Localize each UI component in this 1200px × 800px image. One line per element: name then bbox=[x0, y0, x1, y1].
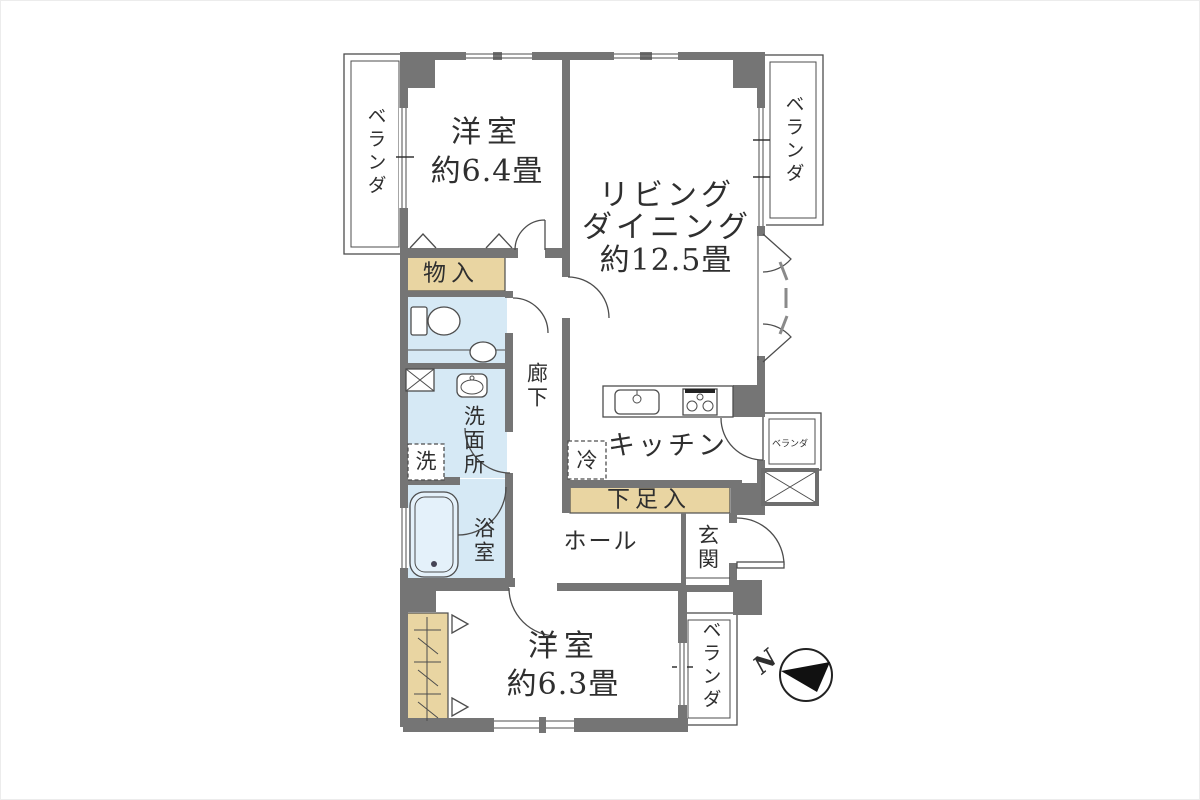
compass-icon bbox=[780, 649, 832, 701]
window bbox=[399, 508, 409, 568]
wall-segment bbox=[400, 615, 408, 727]
wall-segment bbox=[505, 333, 513, 432]
closet-door-triangle bbox=[452, 698, 468, 716]
door-arc-toilet bbox=[513, 298, 548, 333]
label-hall: ホール bbox=[564, 531, 639, 554]
label-bedroom2-name: 洋室 bbox=[528, 632, 600, 662]
label-shoe-cabinet: 下足入 bbox=[607, 489, 691, 512]
label-veranda-side: ベランダ bbox=[772, 441, 808, 450]
window bbox=[677, 643, 687, 705]
window bbox=[614, 51, 640, 61]
label-living-line1: リビング bbox=[599, 181, 735, 211]
wall-segment bbox=[405, 52, 763, 60]
casement-fan bbox=[763, 234, 791, 272]
wall-segment bbox=[678, 705, 687, 725]
label-bedroom2-size: 約6.3畳 bbox=[507, 670, 620, 700]
wall-pillar bbox=[733, 385, 765, 417]
wall-segment bbox=[403, 291, 507, 297]
wall-segment bbox=[403, 248, 518, 258]
bathtub-icon bbox=[410, 492, 458, 577]
window bbox=[502, 51, 532, 61]
wall-segment bbox=[731, 503, 765, 515]
wall-segment bbox=[678, 590, 687, 643]
window bbox=[652, 51, 678, 61]
stove-back-strip bbox=[685, 389, 715, 393]
label-living-size: 約12.5畳 bbox=[600, 246, 733, 276]
kitchen-counter bbox=[603, 386, 733, 417]
label-storage: 物入 bbox=[423, 263, 479, 286]
label-washing-machine: 洗 bbox=[416, 452, 437, 473]
window bbox=[466, 51, 493, 61]
folding-door-chevron bbox=[410, 234, 436, 248]
door-arc-living bbox=[568, 277, 609, 318]
label-veranda-bottom: ベランダ bbox=[701, 620, 720, 712]
wall-segment bbox=[557, 583, 685, 591]
casement-fan bbox=[763, 324, 791, 362]
label-bathroom: 浴室 bbox=[473, 517, 494, 565]
label-living-line2: ダイニング bbox=[582, 213, 752, 243]
window bbox=[399, 108, 409, 208]
meter-box-icon bbox=[406, 369, 434, 391]
window-mullion bbox=[539, 717, 546, 733]
label-washroom: 洗面所 bbox=[463, 405, 484, 477]
wall-segment bbox=[403, 718, 495, 732]
wall-segment bbox=[757, 52, 765, 108]
label-kitchen: キッチン bbox=[608, 433, 728, 460]
wall-segment bbox=[573, 718, 688, 732]
wall-segment bbox=[403, 363, 507, 369]
window bbox=[756, 108, 766, 226]
label-corridor: 廊下 bbox=[526, 362, 547, 410]
entrance-door-leaf bbox=[737, 562, 784, 568]
window bbox=[494, 717, 574, 733]
wall-segment bbox=[400, 52, 408, 108]
label-veranda-top-left: ベランダ bbox=[366, 106, 385, 198]
closet-door-triangle bbox=[452, 615, 468, 633]
wall-segment bbox=[505, 291, 513, 298]
wall-pillar bbox=[733, 580, 762, 615]
wall-segment bbox=[562, 52, 570, 248]
label-bedroom1-size: 約6.4畳 bbox=[431, 157, 544, 187]
wall-segment bbox=[562, 248, 570, 277]
wall-segment bbox=[681, 513, 686, 585]
label-entrance: 玄関 bbox=[697, 524, 718, 572]
toilet-bowl bbox=[428, 307, 460, 335]
door-arc-bedroom1 bbox=[515, 220, 545, 250]
wall-pillar bbox=[405, 52, 435, 88]
wall-segment bbox=[435, 583, 509, 591]
folding-door-chevron bbox=[486, 234, 512, 248]
bathtub-drain bbox=[431, 561, 437, 567]
shaft-x-icon bbox=[763, 470, 817, 504]
wash-basin-icon bbox=[457, 374, 487, 397]
label-bedroom1-name: 洋室 bbox=[451, 118, 523, 148]
bay-window bbox=[758, 234, 791, 362]
label-refrigerator: 冷 bbox=[577, 451, 598, 472]
toilet-tank bbox=[411, 307, 427, 335]
label-veranda-top-right: ベランダ bbox=[784, 94, 803, 186]
corner-basin bbox=[470, 342, 496, 362]
door-arc-entrance bbox=[737, 518, 784, 565]
floorplan-canvas: ベランダ 洋室 約6.4畳 リビング ダイニング 約12.5畳 ベランダ 物入 … bbox=[0, 0, 1200, 800]
wall-segment bbox=[562, 480, 570, 513]
wall-segment bbox=[679, 585, 735, 592]
